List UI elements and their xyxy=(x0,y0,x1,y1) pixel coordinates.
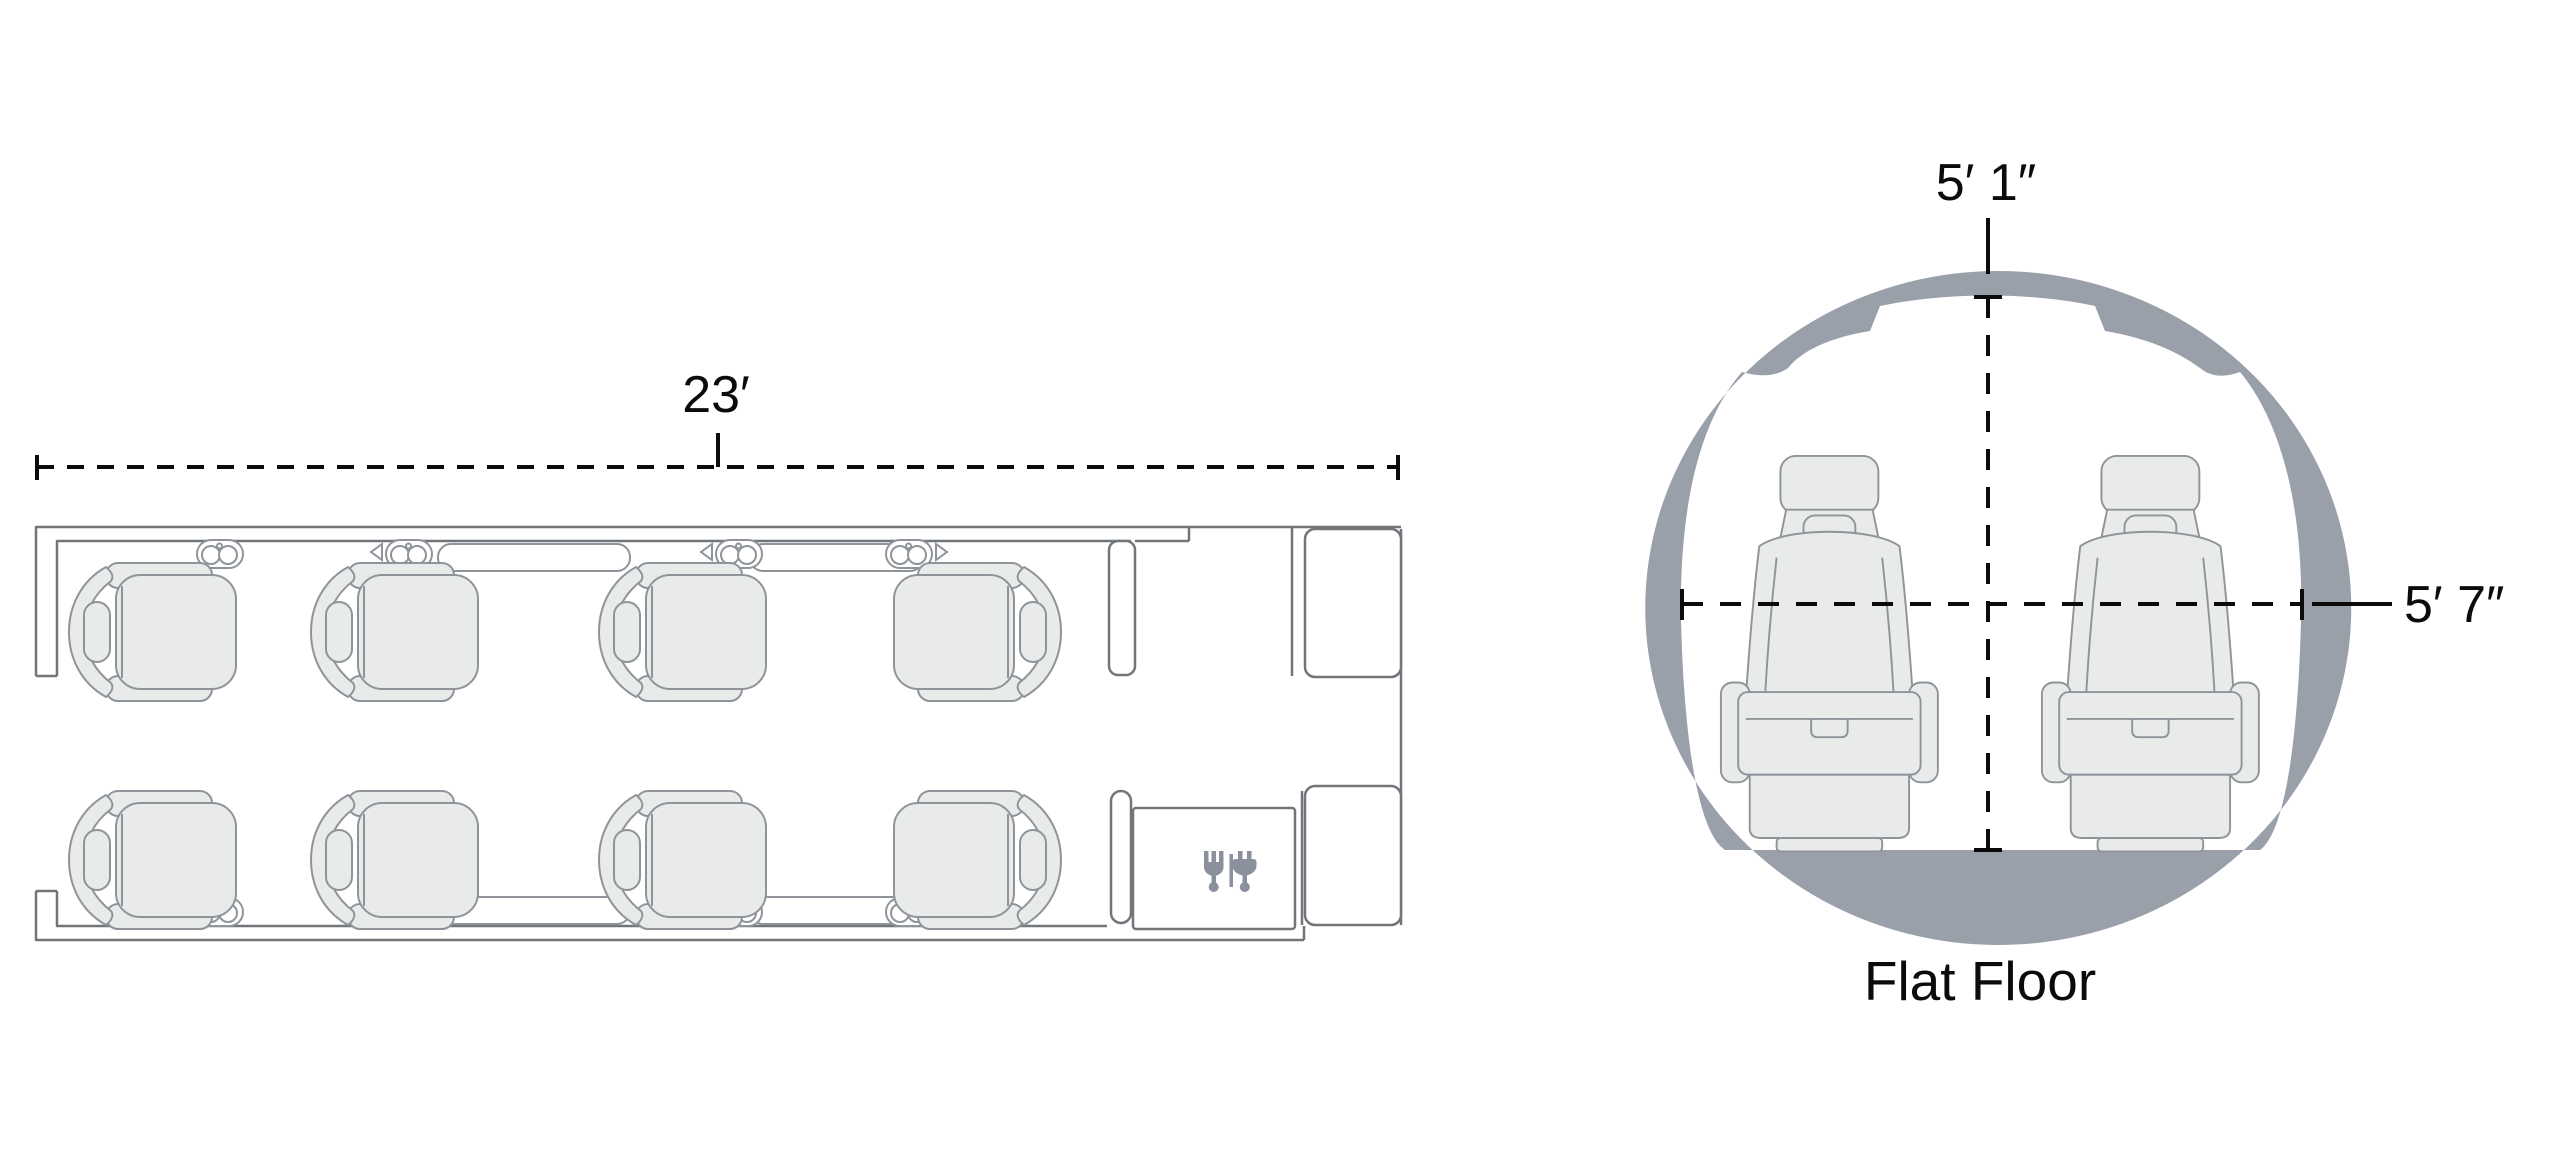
seat-top-view xyxy=(69,791,236,929)
seat-front-view xyxy=(2042,456,2259,852)
cupholder-icons xyxy=(197,540,947,926)
seat-front-view xyxy=(1721,456,1938,852)
seat-top-view xyxy=(599,791,766,929)
fork-and-plug-icon xyxy=(1204,851,1257,892)
forward-partition xyxy=(1109,541,1135,675)
length-dimension: 23′ xyxy=(37,366,1398,480)
height-dimension: 5′ 1″ xyxy=(1936,154,2036,850)
seat-top-view xyxy=(894,563,1061,701)
aisle-handrail xyxy=(1111,791,1131,923)
seat-top-view xyxy=(311,563,478,701)
aircraft-cabin-diagram: 23′ xyxy=(0,0,2560,1157)
diagram-canvas: 23′ xyxy=(0,0,2560,1157)
cabin-height-label: 5′ 1″ xyxy=(1936,154,2036,212)
cabin-length-label: 23′ xyxy=(682,366,750,424)
table-latch-icon xyxy=(371,544,382,560)
seat-top-view xyxy=(599,563,766,701)
fuselage-cross-section: 5′ 1″ 5′ 7″ Flat Floor xyxy=(1645,154,2504,1012)
sidewall-table xyxy=(438,544,630,571)
cabin-floor-plan: 23′ xyxy=(36,366,1401,940)
table-latch-icon xyxy=(936,544,947,560)
passenger-seats-top-view xyxy=(69,563,1061,929)
cabin-width-label: 5′ 7″ xyxy=(2404,576,2504,634)
entry-door-compartment xyxy=(1305,529,1401,677)
seat-top-view xyxy=(894,791,1061,929)
aft-storage-compartment xyxy=(1305,786,1401,925)
length-dimension-ticks xyxy=(37,433,1398,480)
seat-top-view xyxy=(69,563,236,701)
table-latch-icon xyxy=(701,544,712,560)
fuselage-ring xyxy=(1645,271,2351,945)
flat-floor-caption: Flat Floor xyxy=(1864,950,2096,1012)
galley-unit xyxy=(1133,808,1295,929)
seat-top-view xyxy=(311,791,478,929)
